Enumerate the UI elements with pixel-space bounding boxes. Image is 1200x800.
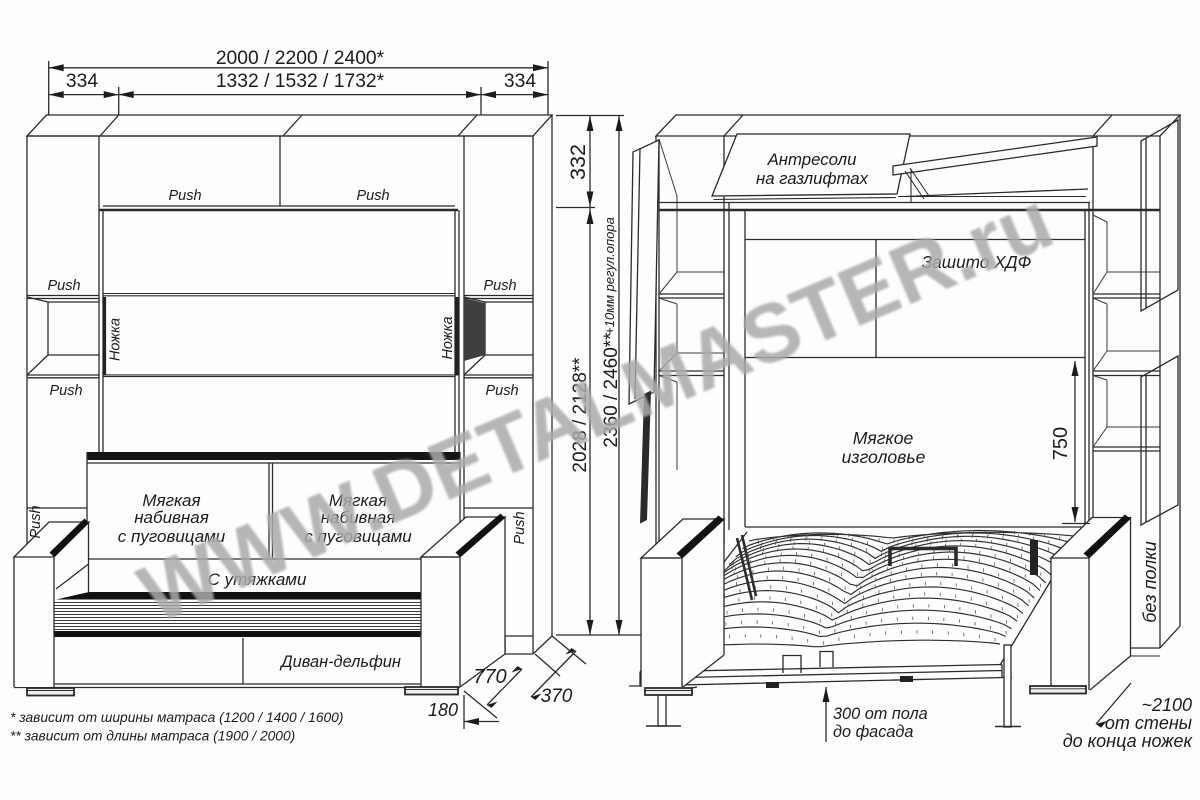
svg-text:без полки: без полки [1140,541,1160,622]
svg-text:334: 334 [504,71,536,92]
svg-text:Push: Push [47,278,80,294]
svg-text:Push: Push [483,278,516,294]
svg-text:334: 334 [66,71,98,92]
svg-text:770: 770 [473,666,506,688]
svg-text:Push: Push [356,188,389,204]
svg-text:** зависит от длины матраса (1: ** зависит от длины матраса (1900 / 2000… [10,729,295,744]
svg-text:300 от пола: 300 от пола [833,705,928,723]
svg-text:от стены: от стены [1105,713,1192,733]
svg-text:Мягкое: Мягкое [853,428,914,448]
svg-text:набивная: набивная [134,508,209,527]
svg-text:370: 370 [541,686,573,707]
svg-text:~2100: ~2100 [1141,695,1192,715]
svg-text:750: 750 [1050,427,1072,460]
svg-text:Push: Push [512,511,528,544]
svg-text:до фасада: до фасада [833,723,913,741]
svg-text:1332 / 1532 / 1732*: 1332 / 1532 / 1732* [216,71,385,92]
svg-text:332: 332 [566,144,590,180]
svg-text:Push: Push [168,188,201,204]
svg-text:* зависит от ширины матраса (1: * зависит от ширины матраса (1200 / 1400… [10,710,343,725]
svg-text:+10мм регул.опора: +10мм регул.опора [602,217,617,335]
svg-text:Антресоли: Антресоли [767,150,857,169]
svg-text:Диван-дельфин: Диван-дельфин [279,653,401,671]
svg-text:Push: Push [49,383,82,399]
svg-text:Ножка: Ножка [440,316,456,359]
svg-text:Ножка: Ножка [108,318,124,361]
svg-text:180: 180 [428,700,458,720]
svg-text:до конца ножек: до конца ножек [1063,731,1194,751]
svg-text:на газлифтах: на газлифтах [756,169,869,188]
svg-text:2000 / 2200 / 2400*: 2000 / 2200 / 2400* [216,48,385,69]
svg-text:изголовье: изголовье [842,447,926,467]
svg-text:Push: Push [28,505,44,538]
